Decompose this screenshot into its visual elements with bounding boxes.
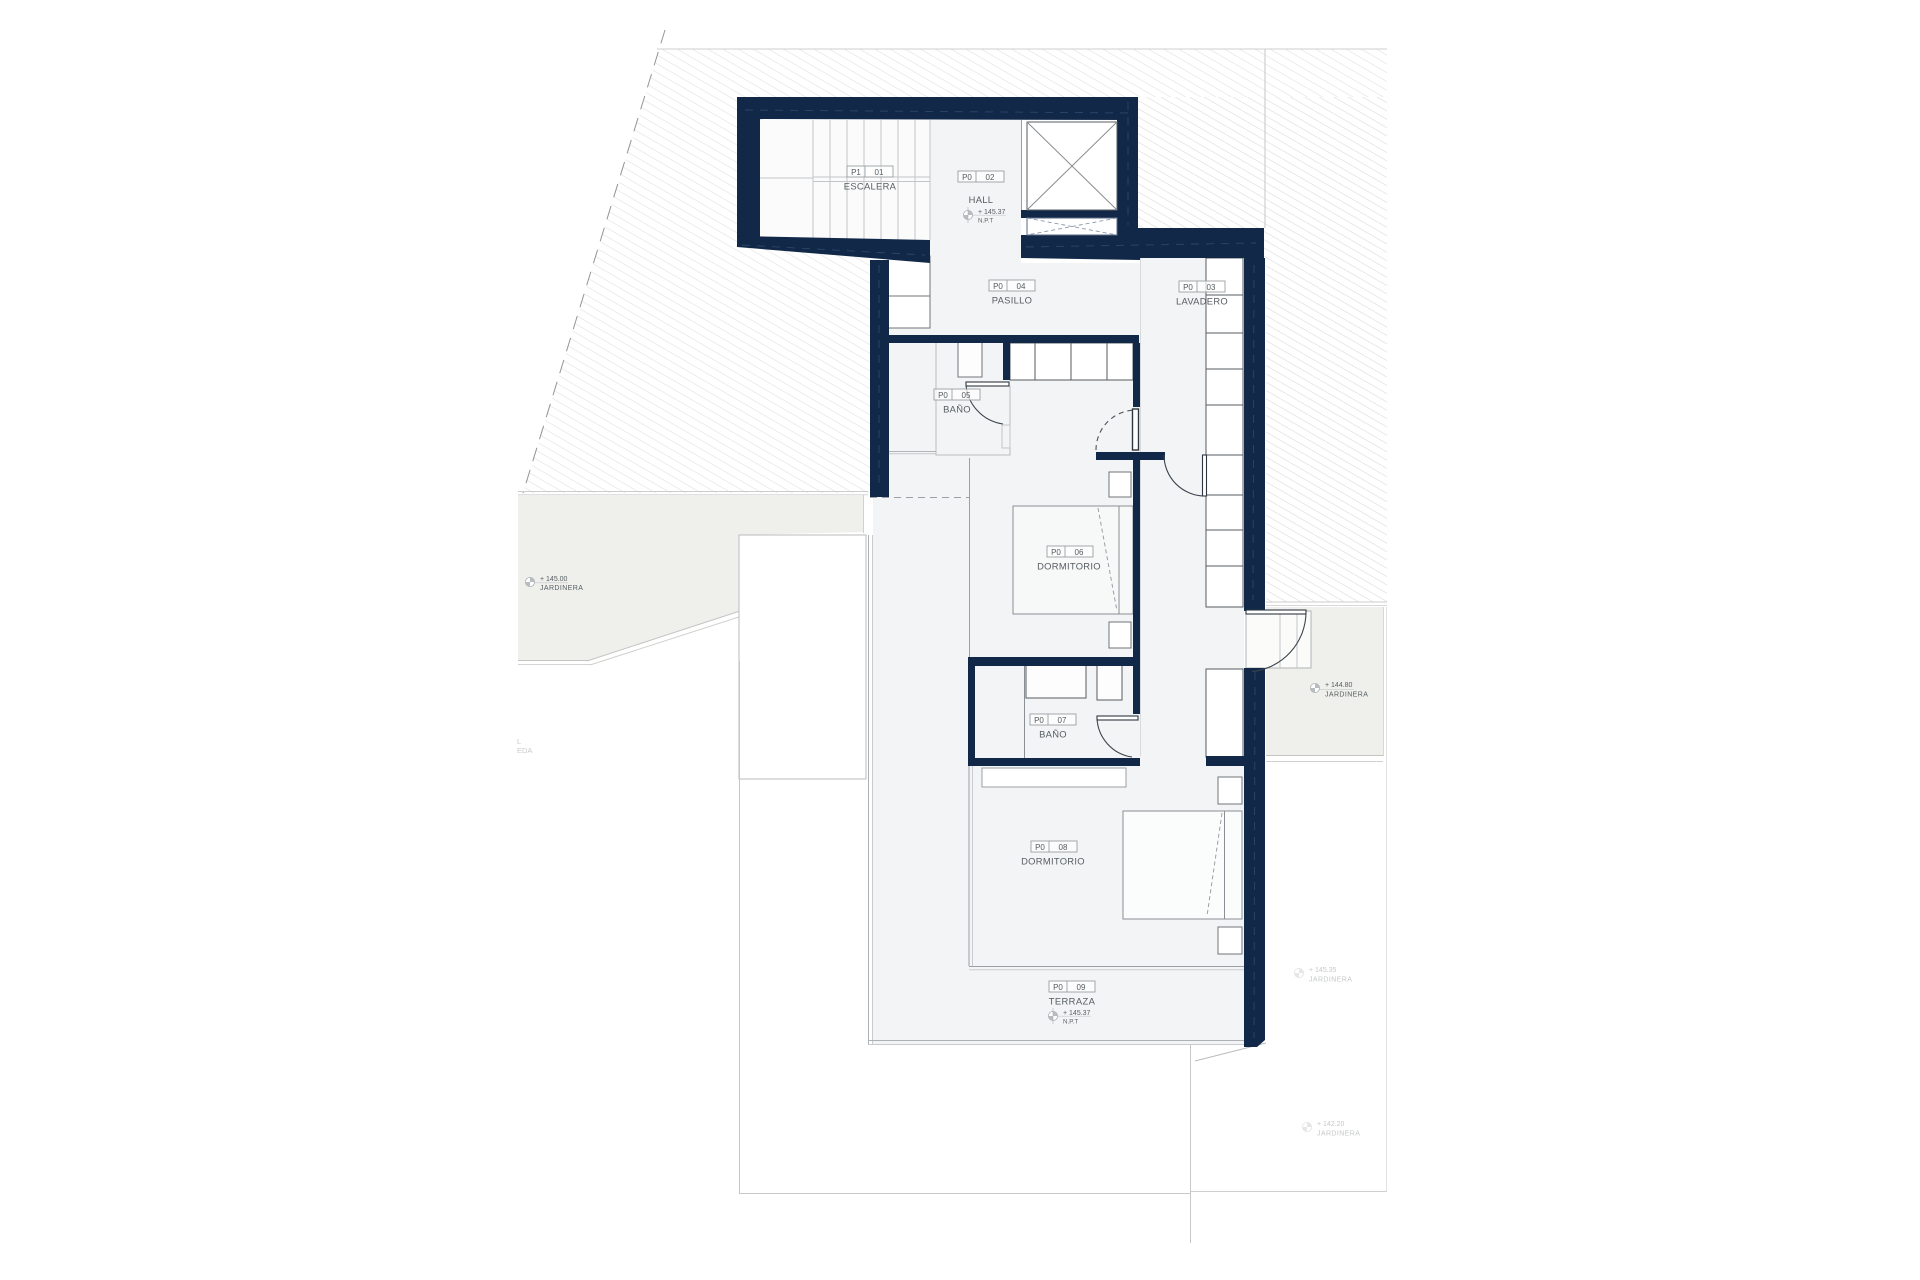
svg-text:BAÑO: BAÑO	[1039, 729, 1067, 740]
svg-text:07: 07	[1058, 716, 1067, 725]
svg-text:09: 09	[1077, 983, 1086, 992]
svg-text:JARDINERA: JARDINERA	[1317, 1131, 1360, 1138]
svg-text:P0: P0	[1035, 843, 1045, 852]
svg-text:P0: P0	[962, 173, 972, 182]
svg-text:N.P.T: N.P.T	[978, 218, 993, 225]
svg-text:DORMITORIO: DORMITORIO	[1037, 561, 1101, 572]
svg-text:+ 145.37: + 145.37	[1063, 1010, 1091, 1017]
svg-text:DORMITORIO: DORMITORIO	[1021, 856, 1085, 867]
svg-text:P0: P0	[1183, 283, 1193, 292]
svg-text:JARDINERA: JARDINERA	[1309, 977, 1352, 984]
svg-text:+ 145.35: + 145.35	[1309, 967, 1337, 974]
svg-text:+ 145.37: + 145.37	[978, 209, 1006, 216]
svg-text:P1: P1	[851, 168, 861, 177]
svg-text:PASILLO: PASILLO	[992, 295, 1033, 306]
svg-text:LAVADERO: LAVADERO	[1176, 296, 1228, 307]
svg-text:08: 08	[1059, 843, 1068, 852]
svg-text:P0: P0	[1034, 716, 1044, 725]
svg-text:JARDINERA: JARDINERA	[1325, 692, 1368, 699]
svg-text:06: 06	[1075, 548, 1084, 557]
svg-text:TERRAZA: TERRAZA	[1049, 996, 1096, 1007]
svg-text:+ 144.80: + 144.80	[1325, 682, 1353, 689]
svg-text:ESCALERA: ESCALERA	[844, 181, 897, 192]
svg-text:L: L	[517, 737, 521, 746]
svg-text:+ 145.00: + 145.00	[540, 576, 568, 583]
svg-text:01: 01	[875, 168, 884, 177]
svg-text:P0: P0	[993, 282, 1003, 291]
svg-text:+ 142.20: + 142.20	[1317, 1121, 1345, 1128]
svg-text:P0: P0	[1053, 983, 1063, 992]
svg-text:HALL: HALL	[969, 194, 994, 205]
svg-text:P0: P0	[1051, 548, 1061, 557]
svg-text:BAÑO: BAÑO	[943, 404, 971, 415]
svg-text:JARDINERA: JARDINERA	[540, 585, 583, 592]
svg-text:02: 02	[986, 173, 995, 182]
svg-text:03: 03	[1207, 283, 1216, 292]
svg-text:P0: P0	[938, 391, 948, 400]
svg-text:05: 05	[962, 391, 971, 400]
svg-text:04: 04	[1017, 282, 1026, 291]
svg-text:N.P.T: N.P.T	[1063, 1019, 1078, 1026]
svg-text:EDA: EDA	[517, 746, 532, 755]
